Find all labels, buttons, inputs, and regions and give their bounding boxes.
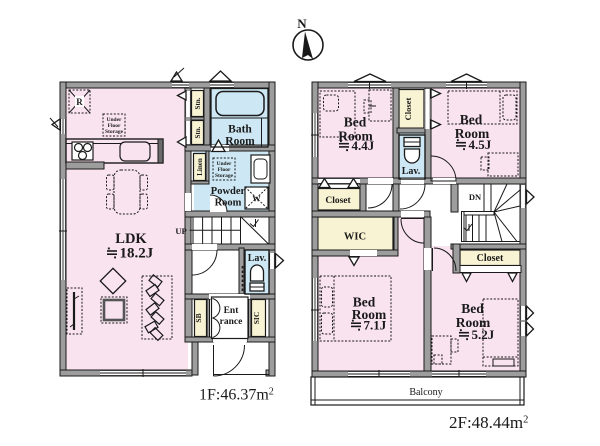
svg-text:Balcony: Balcony [409, 387, 442, 398]
svg-text:1F:46.37m2: 1F:46.37m2 [199, 387, 274, 404]
svg-text:5.2J: 5.2J [472, 327, 495, 342]
svg-text:N: N [297, 16, 307, 31]
svg-text:R: R [76, 97, 83, 107]
svg-text:Bed: Bed [460, 112, 483, 127]
svg-text:SIC: SIC [252, 312, 261, 325]
svg-text:Lav.: Lav. [402, 166, 421, 177]
svg-text:rance: rance [220, 317, 243, 327]
svg-text:Closet: Closet [403, 98, 413, 121]
svg-text:Linen: Linen [196, 158, 204, 176]
svg-text:Room: Room [225, 136, 255, 148]
svg-text:Stn.: Stn. [194, 97, 202, 109]
svg-text:Bath: Bath [228, 124, 252, 136]
svg-text:Ent: Ent [224, 306, 240, 316]
svg-text:UP: UP [175, 226, 186, 236]
svg-text:Powder: Powder [211, 186, 246, 197]
svg-text:4.5J: 4.5J [469, 137, 492, 152]
svg-text:W: W [253, 195, 261, 204]
svg-text:Storage: Storage [215, 173, 234, 179]
svg-text:Room: Room [215, 198, 242, 209]
svg-text:DN: DN [469, 192, 482, 202]
svg-text:Bed: Bed [344, 115, 367, 130]
svg-text:7.1J: 7.1J [364, 318, 387, 333]
svg-text:SB: SB [194, 313, 203, 322]
svg-text:Closet: Closet [325, 196, 351, 206]
svg-text:Storage: Storage [105, 129, 124, 135]
svg-text:18.2J: 18.2J [120, 246, 154, 262]
svg-text:Closet: Closet [477, 253, 504, 264]
svg-text:Lav.: Lav. [248, 253, 267, 264]
svg-text:2F:48.44m2: 2F:48.44m2 [449, 413, 528, 432]
svg-text:WIC: WIC [344, 232, 366, 243]
svg-text:4.4J: 4.4J [352, 138, 375, 153]
svg-text:Stn.: Stn. [194, 126, 202, 138]
svg-text:Bed: Bed [461, 301, 484, 316]
